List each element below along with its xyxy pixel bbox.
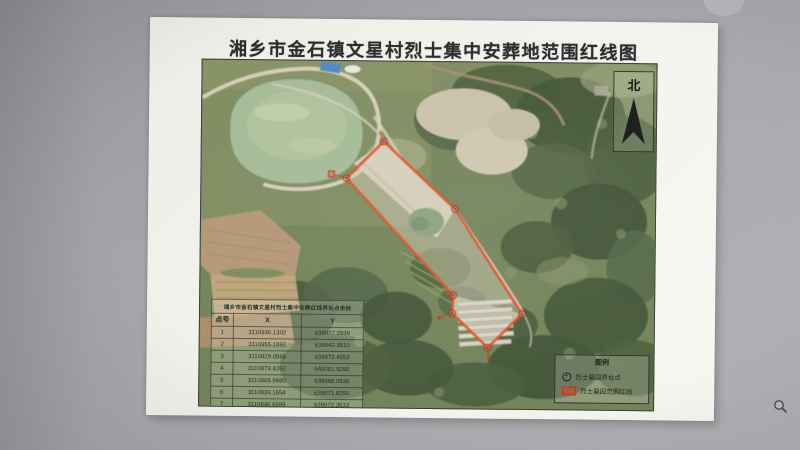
- legend-label: 烈士墓园范围红线: [580, 386, 632, 397]
- document-page: 湘乡市金石镇文星村烈士集中安葬地范围红线图: [146, 17, 718, 421]
- north-label: 北: [614, 75, 653, 94]
- legend-item-red-line: 烈士墓园范围红线: [562, 385, 648, 396]
- legend-label: 烈士墓园界址点: [575, 372, 621, 382]
- wall-spot: [704, 0, 744, 16]
- map-canvas[interactable]: 北 湘乡市金石镇文星村烈士集中安葬红线界址点坐标 点号 X Y: [198, 59, 658, 412]
- col-header-y: Y: [301, 314, 363, 328]
- legend-box: 图例 烈士墓园界址点 烈士墓园范围红线: [554, 354, 650, 404]
- legend-item-boundary-point: 烈士墓园界址点: [562, 371, 648, 382]
- coordinate-table: 湘乡市金石镇文星村烈士集中安葬红线界址点坐标 点号 X Y 13110936.1…: [210, 299, 364, 412]
- col-header-point: 点号: [211, 313, 233, 326]
- col-header-x: X: [233, 313, 301, 327]
- pond: [229, 78, 364, 185]
- zoom-cursor-icon: [773, 399, 789, 415]
- table-row: 73110846.6699639972.3533: [210, 398, 362, 411]
- legend-title: 图例: [555, 357, 648, 368]
- boundary-point-icon: [562, 372, 571, 381]
- north-arrow: 北: [613, 71, 655, 152]
- north-arrow-icon: [615, 94, 653, 152]
- red-line-icon: [562, 386, 576, 395]
- screen-photo: 湘乡市金石镇文星村烈士集中安葬地范围红线图: [0, 0, 800, 450]
